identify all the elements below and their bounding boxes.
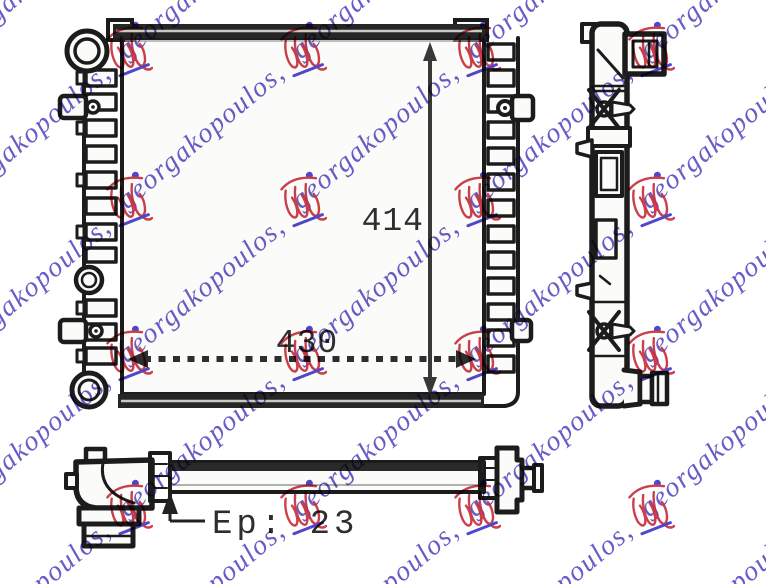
thickness-dimension-label: Ep: 23 [212,506,358,544]
bottom-tank-band [118,394,484,408]
top-tank-band [108,20,487,41]
right-mount-tab-lower [512,320,531,341]
radiator-side-view [577,24,667,406]
height-dimension-label: 414 [362,203,424,240]
technical-drawing-canvas: 414 430 [0,0,766,584]
left-middle-port [76,267,102,293]
right-tank [484,38,533,406]
bottom-left-elbow-pipe [66,449,152,546]
filler-neck-port [67,31,107,71]
left-mount-tab-upper [60,96,99,118]
width-dimension-label: 430 [276,325,338,362]
side-bottom-outlet [624,370,667,406]
side-left-tab-lower [577,283,592,299]
side-top-outlet [625,34,664,74]
left-tank [60,31,116,407]
left-mount-tab-lower [60,320,102,342]
bottom-right-outlet [480,448,542,512]
left-bottom-port [72,373,106,407]
side-left-tab-upper [577,140,592,157]
right-mount-tab-upper [498,96,533,120]
radiator-technical-drawing: 414 430 [0,0,766,584]
thickness-dimension: Ep: 23 [162,492,358,544]
bottom-body [170,462,484,492]
